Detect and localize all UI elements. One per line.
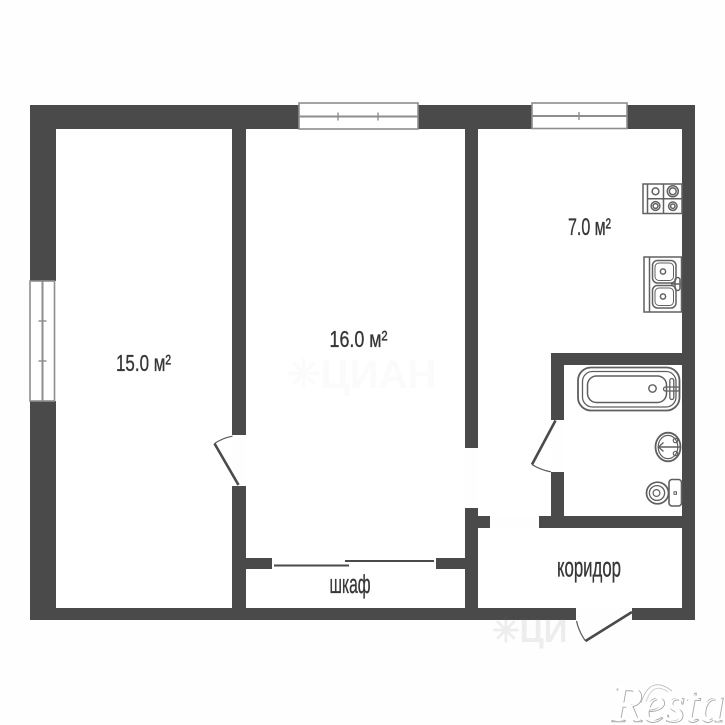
svg-text:✳ЦИ: ✳ЦИ [492,612,567,649]
svg-text:коридор: коридор [557,552,621,583]
svg-text:7.0 м²: 7.0 м² [568,214,611,241]
svg-text:✳ЦИАН: ✳ЦИАН [287,353,436,397]
svg-text:16.0 м²: 16.0 м² [330,326,388,352]
svg-text:Restate: Restate [609,676,725,725]
svg-text:15.0 м²: 15.0 м² [116,350,171,376]
svg-text:шкаф: шкаф [330,571,371,599]
